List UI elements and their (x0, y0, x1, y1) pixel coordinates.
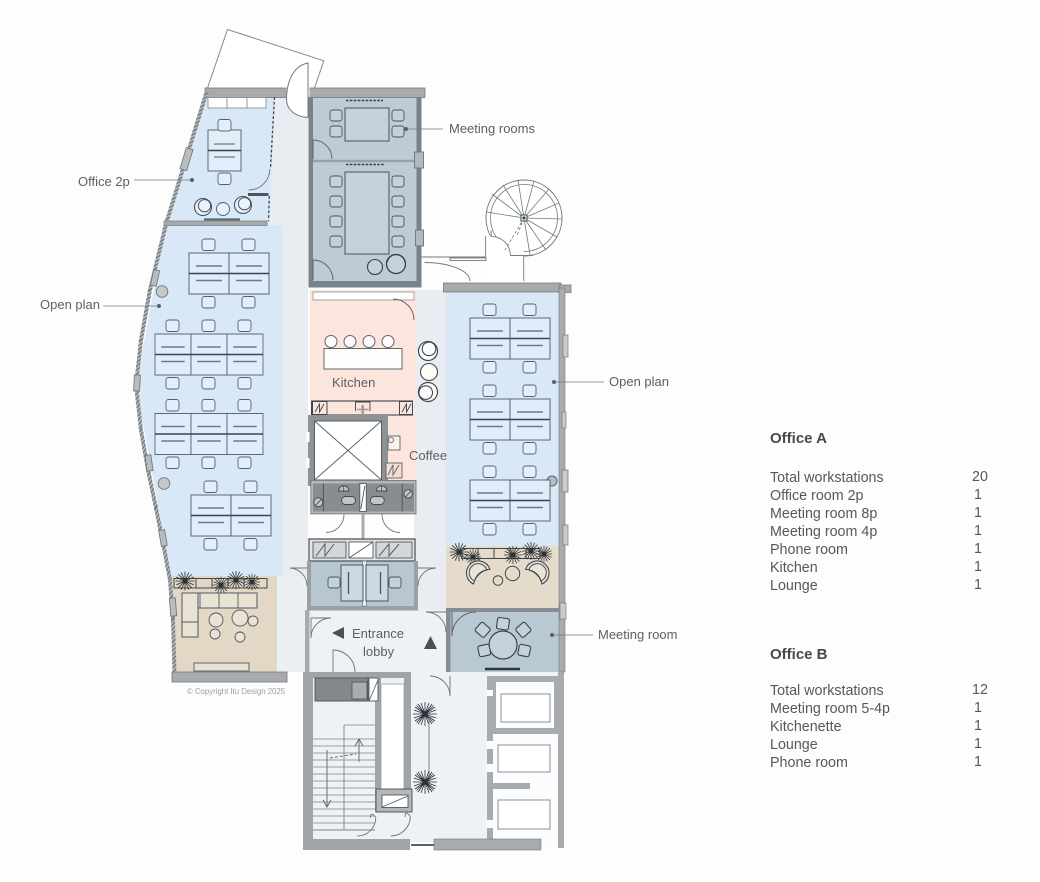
svg-text:Total workstations: Total workstations (770, 683, 884, 699)
svg-text:Coffee: Coffee (409, 448, 447, 463)
svg-text:1: 1 (974, 559, 982, 575)
svg-text:Office room 2p: Office room 2p (770, 488, 864, 504)
svg-text:Kitchen: Kitchen (770, 560, 818, 576)
svg-text:Open plan: Open plan (609, 374, 669, 389)
svg-text:1: 1 (974, 754, 982, 770)
svg-text:1: 1 (974, 736, 982, 752)
svg-text:1: 1 (974, 700, 982, 716)
svg-text:Phone room: Phone room (770, 755, 848, 771)
svg-text:© Copyright Itu Design 2025: © Copyright Itu Design 2025 (187, 687, 286, 696)
svg-text:Meeting room 8p: Meeting room 8p (770, 506, 877, 522)
svg-text:1: 1 (974, 577, 982, 593)
svg-text:Kitchenette: Kitchenette (770, 719, 842, 735)
svg-text:Meeting room 4p: Meeting room 4p (770, 524, 877, 540)
svg-text:1: 1 (974, 718, 982, 734)
svg-text:12: 12 (972, 682, 988, 698)
svg-text:Office 2p: Office 2p (78, 174, 130, 189)
svg-text:Phone room: Phone room (770, 542, 848, 558)
svg-text:Entrance: Entrance (352, 626, 404, 641)
svg-text:Total workstations: Total workstations (770, 470, 884, 486)
svg-text:Kitchen: Kitchen (332, 375, 375, 390)
svg-text:1: 1 (974, 541, 982, 557)
svg-text:Office A: Office A (770, 430, 827, 447)
svg-text:1: 1 (974, 505, 982, 521)
svg-text:Open plan: Open plan (40, 297, 100, 312)
svg-text:Meeting room 5-4p: Meeting room 5-4p (770, 701, 890, 717)
svg-text:Lounge: Lounge (770, 578, 818, 594)
svg-text:Meeting room: Meeting room (598, 627, 677, 642)
svg-text:20: 20 (972, 469, 988, 485)
svg-text:Meeting rooms: Meeting rooms (449, 121, 535, 136)
svg-text:1: 1 (974, 487, 982, 503)
svg-text:Lounge: Lounge (770, 737, 818, 753)
svg-text:1: 1 (974, 523, 982, 539)
svg-text:Office B: Office B (770, 646, 828, 663)
svg-text:lobby: lobby (363, 644, 395, 659)
